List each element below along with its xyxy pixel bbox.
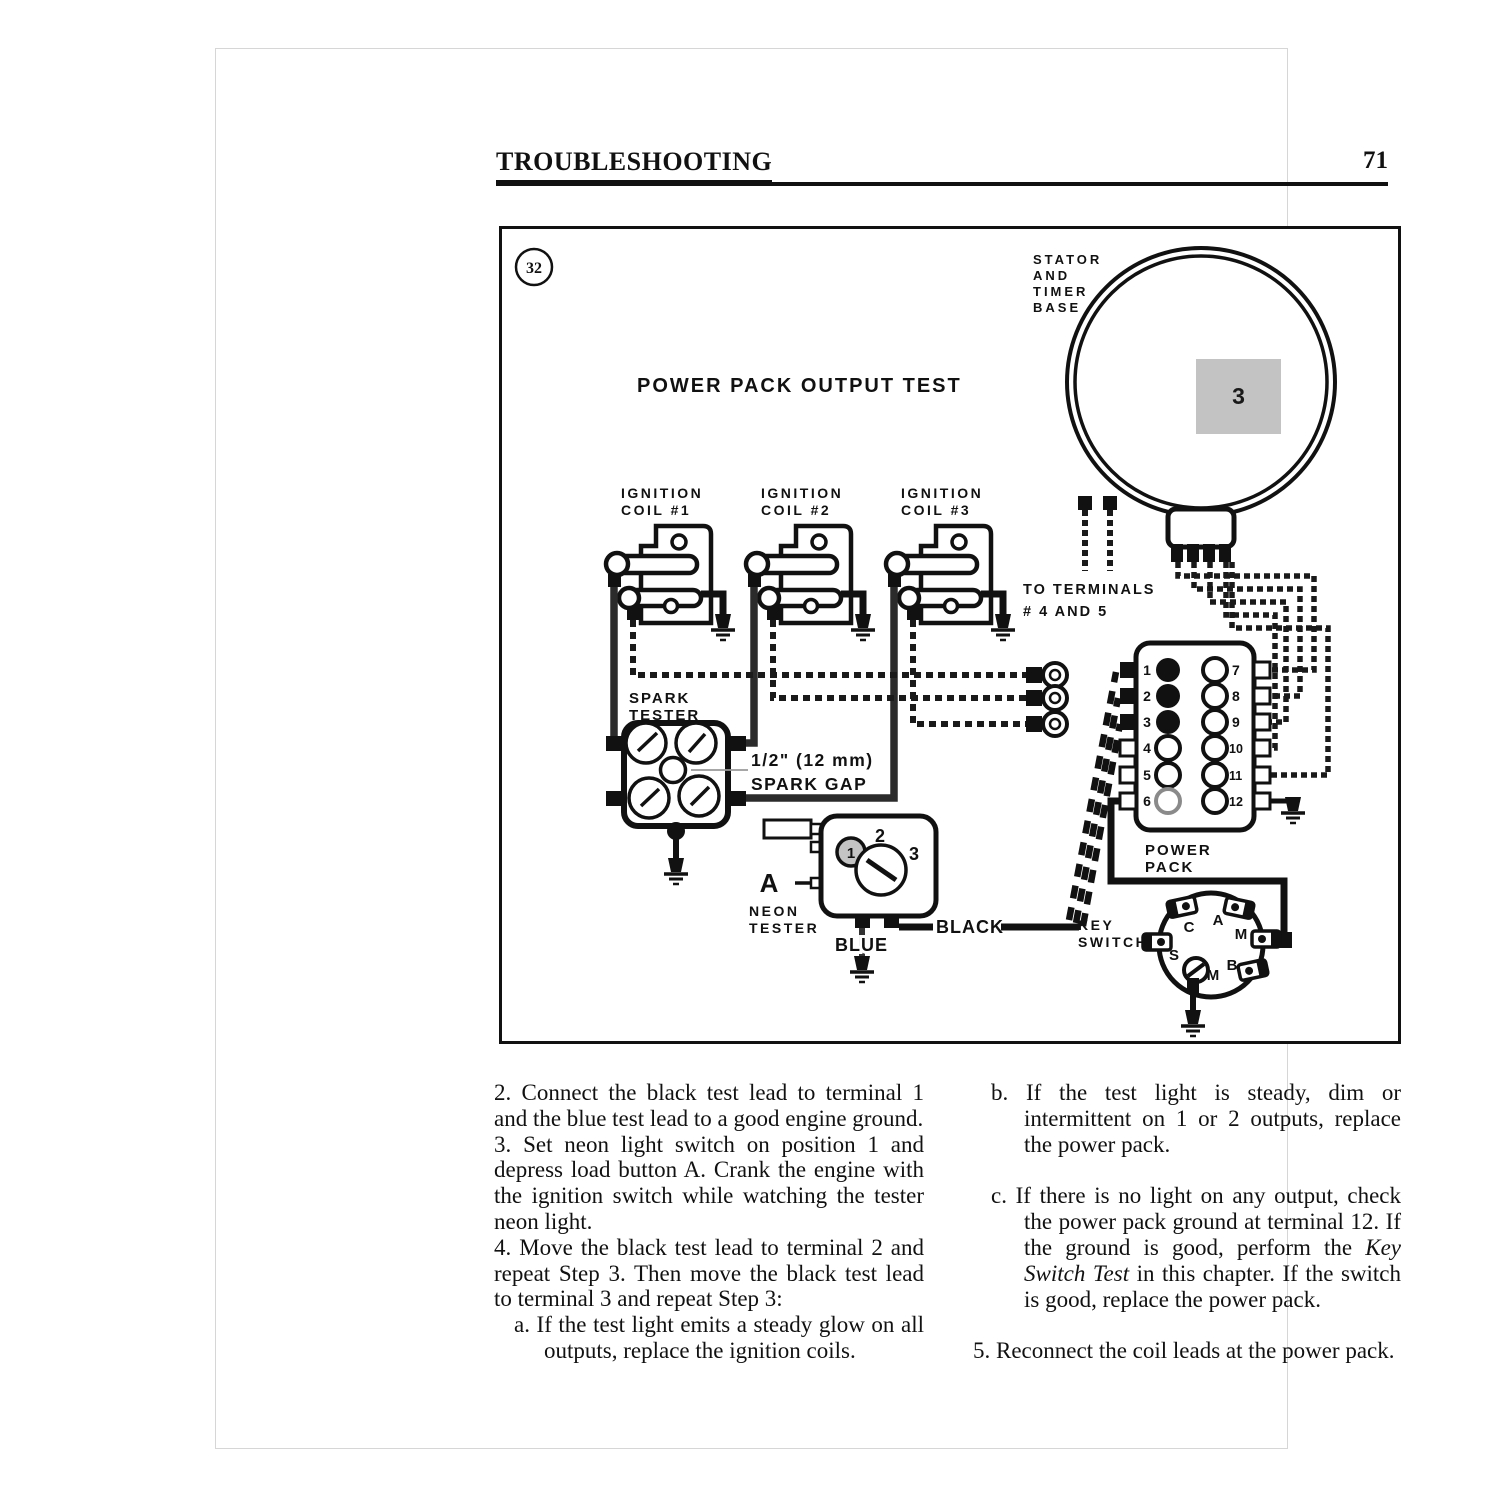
spark-gap-label-1: 1/2" (12 mm) <box>751 750 874 770</box>
right-column: b. If the test light is steady, dim or i… <box>973 1080 1401 1364</box>
key-terminal-B: B <box>1227 957 1238 974</box>
pp-term-6: 6 <box>1143 793 1151 809</box>
load-button-label: A <box>760 868 779 898</box>
step-4: 4. Move the black test lead to terminal … <box>494 1235 924 1312</box>
figure-32-diagram: 32 POWER PACK OUTPUT TEST STATOR AND TIM… <box>499 226 1401 1044</box>
page-title: TROUBLESHOOTING <box>496 147 772 182</box>
spark-tester-label-2: TESTER <box>629 707 700 724</box>
pp-term-8: 8 <box>1232 688 1240 704</box>
neon-pos-3: 3 <box>909 844 920 864</box>
key-terminal-M2: M <box>1207 967 1220 984</box>
spark-gap-label-2: SPARK GAP <box>751 774 867 794</box>
stator-label-1: STATOR <box>1033 252 1102 267</box>
black-lead-label: BLACK <box>936 917 1004 937</box>
key-terminal-C: C <box>1184 919 1195 936</box>
terminals-note-1: TO TERMINALS <box>1023 582 1155 598</box>
pp-term-11: 11 <box>1229 769 1242 783</box>
spark-tester-label-1: SPARK <box>629 690 690 707</box>
paper-sheet: TROUBLESHOOTING 71 <box>215 48 1288 1449</box>
figure-number-badge: 32 <box>516 249 552 285</box>
key-terminal-S: S <box>1169 947 1179 964</box>
pp-term-2: 2 <box>1143 688 1151 704</box>
pp-term-12: 12 <box>1229 795 1243 809</box>
step-2: 2. Connect the black test lead to termin… <box>494 1080 924 1132</box>
power-pack-label-2: PACK <box>1145 859 1194 876</box>
item-b: b. If the test light is steady, dim or i… <box>973 1080 1401 1157</box>
coil2-label-1: IGNITION <box>761 485 843 501</box>
coil3-label-1: IGNITION <box>901 485 983 501</box>
coil1-label-2: COIL #1 <box>621 502 691 518</box>
coil2-label-2: COIL #2 <box>761 502 831 518</box>
neon-pos-2: 2 <box>875 826 886 846</box>
step-3: 3. Set neon light switch on position 1 a… <box>494 1132 924 1235</box>
pp-term-3: 3 <box>1143 714 1151 730</box>
pp-term-9: 9 <box>1232 714 1240 730</box>
neon-tester-label-2: TESTER <box>749 920 819 936</box>
step-5: 5. Reconnect the coil leads at the power… <box>973 1338 1401 1364</box>
coil3-label-2: COIL #3 <box>901 502 971 518</box>
pp-term-5: 5 <box>1143 767 1151 783</box>
neon-pos-1: 1 <box>847 845 855 862</box>
pp-term-1: 1 <box>1143 662 1151 678</box>
power-pack-label-1: POWER <box>1145 842 1212 859</box>
page-number: 71 <box>1316 147 1388 175</box>
step-4a: a. If the test light emits a steady glow… <box>494 1312 924 1364</box>
scanned-manual-page: TROUBLESHOOTING 71 <box>0 0 1500 1500</box>
neon-tester-label-1: NEON <box>749 903 799 919</box>
key-terminal-M1: M <box>1235 926 1248 943</box>
left-column: 2. Connect the black test lead to termin… <box>494 1080 924 1364</box>
item-c: c. If there is no light on any output, c… <box>973 1183 1401 1312</box>
coil1-label-1: IGNITION <box>621 485 703 501</box>
ring-connectors <box>1026 663 1067 736</box>
stator-label-2: AND <box>1033 268 1070 283</box>
figure-number: 32 <box>526 260 542 277</box>
key-terminal-A: A <box>1213 912 1224 929</box>
stator-label-3: TIMER <box>1033 284 1088 299</box>
chapter-tab: 3 <box>1196 359 1281 434</box>
key-switch-label-2: SWITCH <box>1078 934 1148 950</box>
key-switch-label-1: KEY <box>1078 917 1114 933</box>
terminals-note-2: # 4 AND 5 <box>1023 604 1108 620</box>
blue-lead-label: BLUE <box>835 935 888 955</box>
figure-title: POWER PACK OUTPUT TEST <box>637 375 962 397</box>
pp-term-4: 4 <box>1143 740 1151 756</box>
header-rule <box>496 182 1388 186</box>
neon-bulb <box>764 820 811 838</box>
pp-term-7: 7 <box>1232 662 1240 678</box>
chapter-tab-number: 3 <box>1232 383 1245 410</box>
pp-term-10: 10 <box>1229 742 1243 756</box>
stator-label-4: BASE <box>1033 300 1081 315</box>
